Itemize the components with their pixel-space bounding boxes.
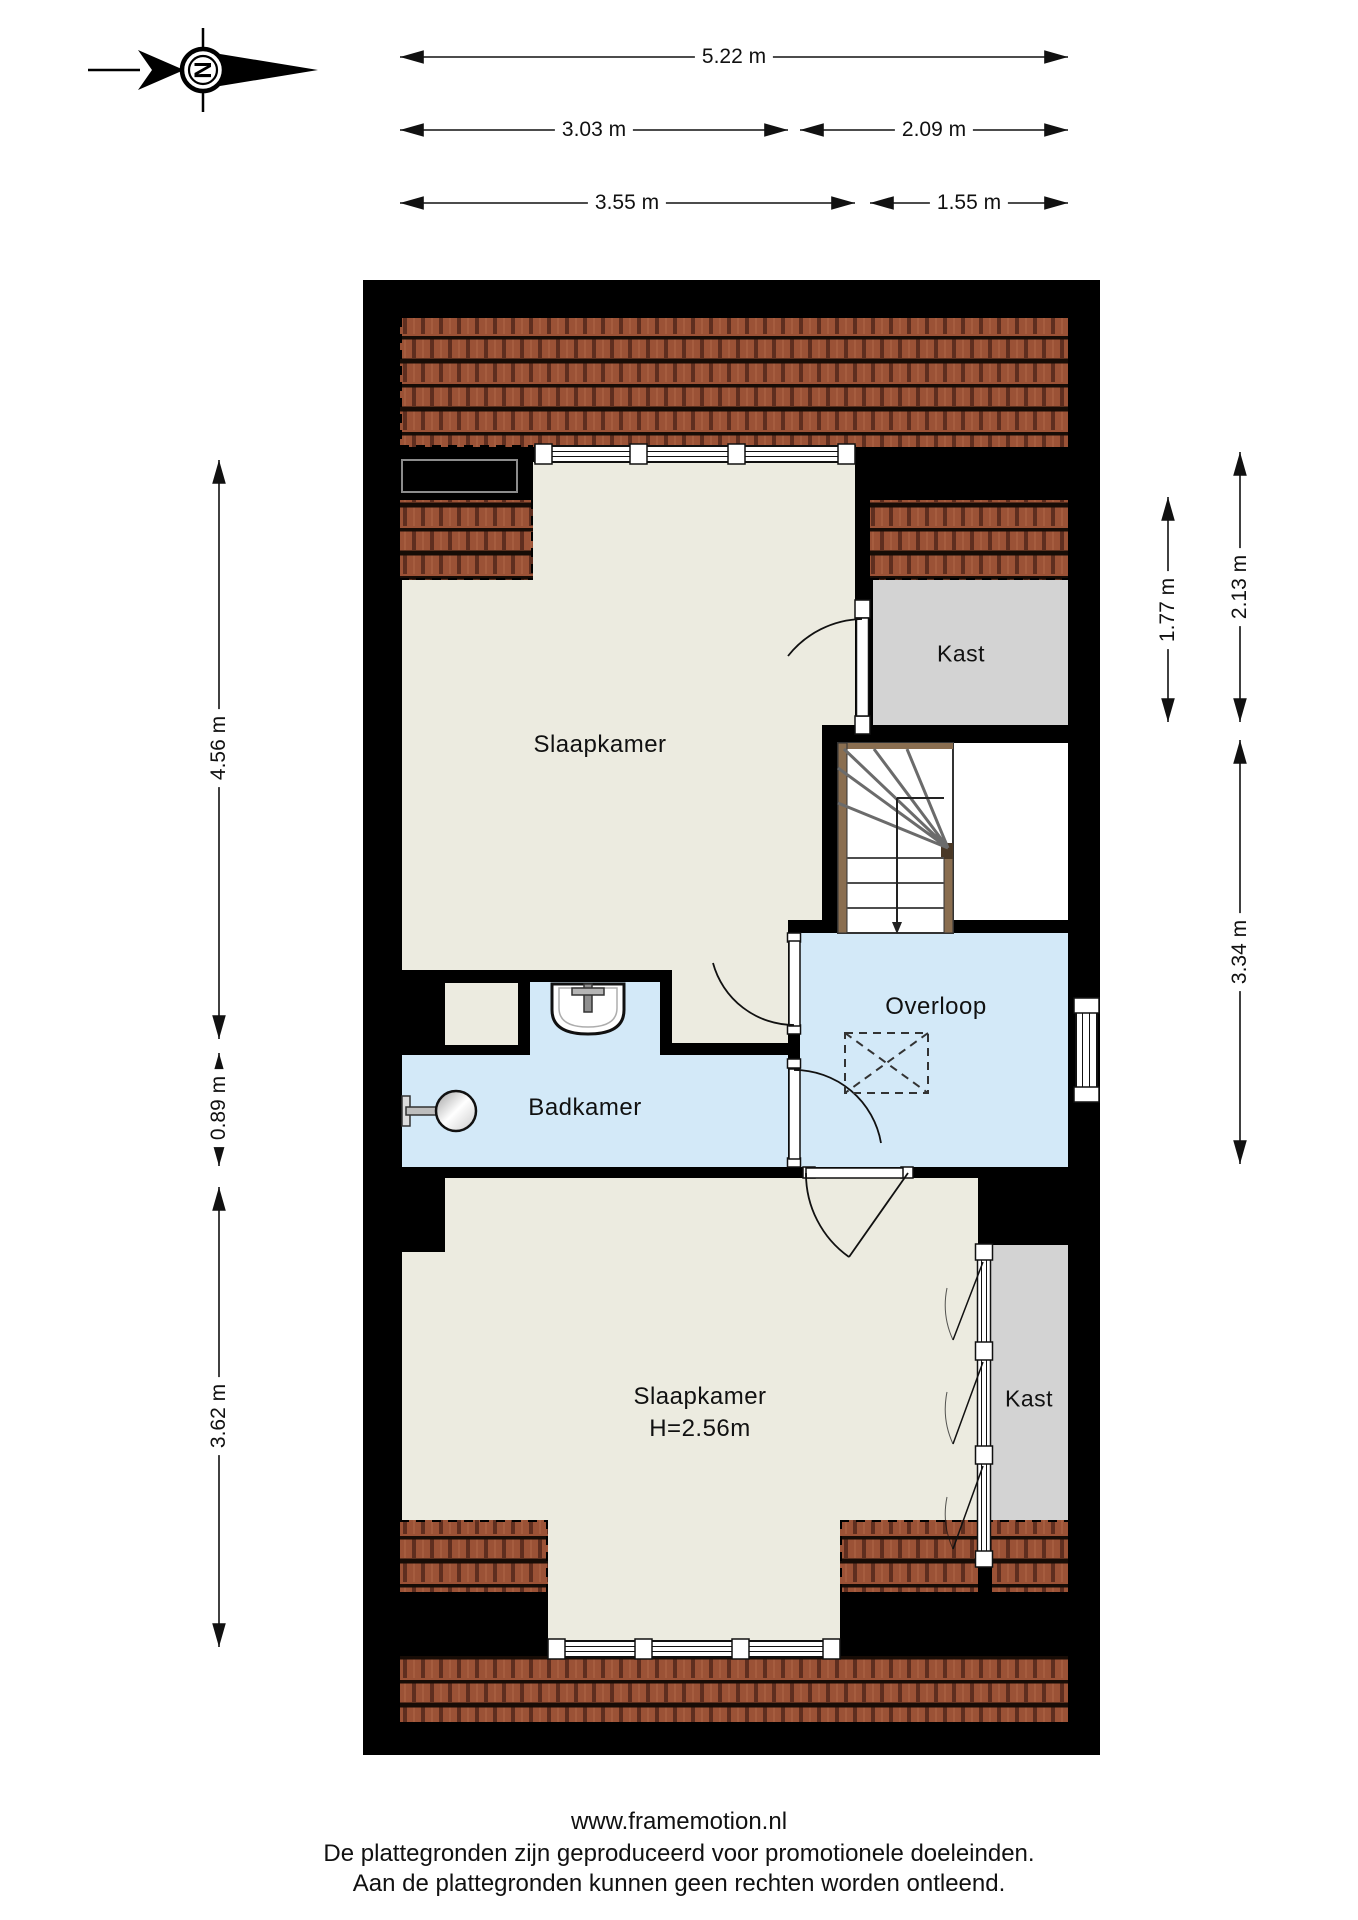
floor-plan-page: N Slaapkamer Kast Badkamer Overloop Slaa… [0,0,1358,1920]
svg-text:N: N [189,61,216,78]
floor-plan-drawing: N [0,0,1358,1920]
footer-disclaimer-line2: Aan de plattegronden kunnen geen rechten… [0,1870,1358,1898]
window-landing-right [1074,998,1099,1102]
landing-floor [800,933,1068,1167]
staircase [838,743,953,934]
dormer-header-left [402,460,517,492]
dim-top-bedroom-width: 3.55 m [588,191,666,215]
dim-top-total: 5.22 m [695,45,773,69]
window-top [535,444,855,464]
void-area [953,743,1068,920]
room-label-closet-top: Kast [937,641,985,668]
footer-website: www.framemotion.nl [0,1808,1358,1836]
dim-right-upper: 2.13 m [1228,548,1252,626]
bathroom-sink [552,984,624,1034]
dim-top-left-span: 3.03 m [555,118,633,142]
room-label-bedroom-bottom: Slaapkamer [633,1383,766,1411]
dim-right-landing: 3.34 m [1228,913,1252,991]
room-label-bedroom-bottom-height: H=2.56m [649,1415,751,1443]
dormer-header-right [870,458,1068,493]
footer-disclaimer-line1: De plattegronden zijn geproduceerd voor … [0,1840,1358,1868]
dim-left-bedroom-bottom: 3.62 m [207,1377,231,1455]
room-label-bathroom: Badkamer [528,1094,641,1122]
dim-left-bathroom: 0.89 m [207,1069,231,1147]
dim-right-closet-depth: 1.77 m [1156,571,1180,649]
north-compass-icon: N [88,28,318,112]
window-bottom [548,1639,840,1659]
dim-left-bedroom-top: 4.56 m [207,709,231,787]
room-label-landing: Overloop [885,993,986,1021]
room-label-bedroom-top: Slaapkamer [533,731,666,759]
dim-top-right-span: 2.09 m [895,118,973,142]
dim-top-closet-width: 1.55 m [930,191,1008,215]
room-label-closet-bottom: Kast [1005,1386,1053,1413]
